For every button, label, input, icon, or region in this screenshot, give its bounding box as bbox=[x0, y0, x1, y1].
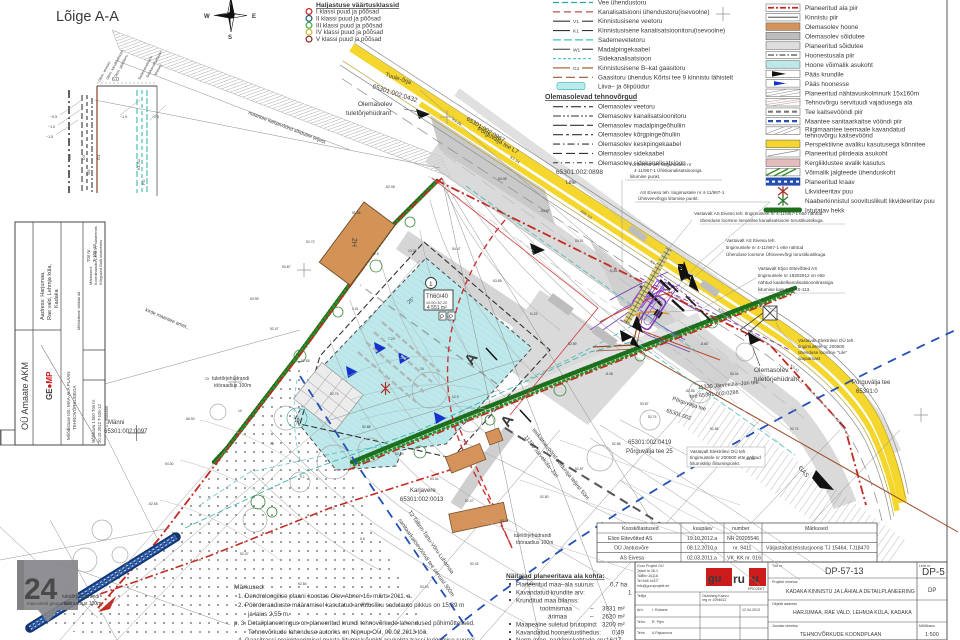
svg-text:08.12.2010.a: 08.12.2010.a bbox=[687, 546, 717, 552]
svg-text:Vastavalt Elektrilevi OÜ teh.: Vastavalt Elektrilevi OÜ teh. bbox=[690, 448, 747, 454]
svg-text:53.44: 53.44 bbox=[430, 477, 439, 481]
svg-text:Liiva– ja õlipüüdur: Liiva– ja õlipüüdur bbox=[598, 84, 650, 91]
svg-text:tuletõrjehüdrant: tuletõrjehüdrant bbox=[346, 110, 391, 117]
svg-text:alajaamast: alajaamast bbox=[798, 356, 821, 361]
svg-text:N-23: N-23 bbox=[530, 312, 537, 316]
svg-text:Kinnistusisene kanalisatsiooni: Kinnistusisene kanalisatsioonitoru(isevo… bbox=[598, 28, 725, 35]
svg-text:reg nr 1094612: reg nr 1094612 bbox=[702, 598, 726, 602]
svg-text:nähtud kaabelkanalisatsioonitr: nähtud kaabelkanalisatsioonitrassiga bbox=[758, 280, 834, 285]
svg-text:Projekti nimetus: Projekti nimetus bbox=[772, 580, 798, 584]
svg-text:-8.08: -8.08 bbox=[605, 372, 613, 376]
svg-text:V klassi puud ja põõsad: V klassi puud ja põõsad bbox=[316, 36, 382, 43]
svg-text:-52.85: -52.85 bbox=[685, 389, 695, 393]
svg-text:52.43: 52.43 bbox=[470, 562, 479, 566]
svg-text:~1.9: ~1.9 bbox=[120, 115, 127, 119]
svg-text:number: number bbox=[732, 526, 750, 532]
svg-text:P: P bbox=[440, 315, 444, 321]
svg-text:OÜ Amaate AKM: OÜ Amaate AKM bbox=[20, 362, 30, 430]
svg-text:Th60/40: Th60/40 bbox=[426, 294, 449, 300]
svg-text:liitumise punkt.: liitumise punkt. bbox=[630, 174, 660, 179]
svg-text:65301:002:0013: 65301:002:0013 bbox=[400, 497, 444, 503]
svg-text:Tee kaitsevööndi piir: Tee kaitsevööndi piir bbox=[805, 109, 864, 116]
svg-text:Tehnovõrkude lahenduse autorik: Tehnovõrkude lahenduse autoriks on Nipnu… bbox=[248, 629, 428, 636]
svg-text:52.89: 52.89 bbox=[568, 342, 577, 346]
svg-text:-8.85: -8.85 bbox=[700, 342, 708, 346]
svg-text:E: E bbox=[252, 14, 256, 20]
svg-text:52.47: 52.47 bbox=[465, 499, 474, 503]
svg-text:-53.08: -53.08 bbox=[745, 457, 755, 461]
svg-text:Kanalisatsiooni ühendustoru(is: Kanalisatsiooni ühendustoru(isevoolne) bbox=[598, 9, 710, 16]
svg-text:Olemasolevad tehnovõrgud: Olemasolevad tehnovõrgud bbox=[545, 94, 637, 101]
svg-text:–: – bbox=[590, 614, 594, 621]
svg-text:NR 20205546: NR 20205546 bbox=[727, 536, 759, 542]
svg-text:Kõrgused Balti süsteemis: Kõrgused Balti süsteemis bbox=[98, 240, 103, 285]
svg-text:Olemasolev kanalisatsioonitoru: Olemasolev kanalisatsioonitoru bbox=[598, 113, 687, 120]
svg-text:~1.5: ~1.5 bbox=[46, 135, 53, 139]
svg-text:KADAKA KINNISTU JA LÄHIALA DET: KADAKA KINNISTU JA LÄHIALA DETAILPLANEER… bbox=[786, 588, 915, 595]
svg-text:1: 1 bbox=[628, 590, 632, 597]
svg-text:Sademevetetoru: Sademevetetoru bbox=[598, 37, 645, 44]
svg-text:3931 m²: 3931 m² bbox=[602, 606, 625, 613]
svg-text:4.51: 4.51 bbox=[352, 307, 359, 311]
svg-text:ja laius 2,55 m.: ja laius 2,55 m. bbox=[247, 611, 290, 618]
svg-text:Põrguvälja tee: Põrguvälja tee bbox=[852, 380, 891, 386]
svg-text:-52.85: -52.85 bbox=[300, 359, 310, 363]
svg-text:ärimaa: ärimaa bbox=[548, 614, 567, 621]
svg-text:Töö Nr.: Töö Nr. bbox=[86, 248, 91, 262]
svg-text:A Pajusnova: A Pajusnova bbox=[652, 631, 672, 635]
svg-text:Näitajad planeeritava ala k: Näitajad planeeritava ala kohta: bbox=[506, 573, 605, 580]
svg-text:52.74: 52.74 bbox=[648, 415, 657, 419]
svg-text:20.10.2012 T-105-12: 20.10.2012 T-105-12 bbox=[97, 404, 102, 443]
svg-text:Mõõdulised: täõädu ää: Mõõdulised: täõädu ää bbox=[77, 291, 81, 330]
svg-text:DP-57-13: DP-57-13 bbox=[825, 566, 864, 576]
svg-text:Männi: Männi bbox=[108, 420, 124, 426]
svg-text:-53.85: -53.85 bbox=[492, 279, 502, 283]
svg-text:–: – bbox=[590, 606, 594, 613]
svg-text:K1-S1: K1-S1 bbox=[136, 158, 141, 170]
svg-text:W: W bbox=[204, 14, 210, 20]
svg-text:3200 m²: 3200 m² bbox=[602, 622, 625, 629]
svg-text:Olemasolev kõrgpingeõhuliin: Olemasolev kõrgpingeõhuliin bbox=[598, 132, 681, 139]
svg-text:~1.0: ~1.0 bbox=[48, 125, 55, 129]
svg-text:3.0: 3.0 bbox=[330, 507, 335, 511]
svg-text:0,49: 0,49 bbox=[612, 630, 625, 637]
svg-text:5.6: 5.6 bbox=[360, 537, 365, 541]
svg-text:Guru Projekt OÜ: Guru Projekt OÜ bbox=[637, 564, 664, 568]
svg-text:12.5: 12.5 bbox=[372, 252, 379, 256]
svg-text:4-11/967-1 Ühiskanalisatsioon: 4-11/967-1 Ühiskanalisatsiooniga bbox=[634, 167, 702, 173]
svg-text:65301:0: 65301:0 bbox=[856, 389, 878, 395]
svg-text:tuletõrjehüdrandi: tuletõrjehüdrandi bbox=[514, 533, 551, 539]
svg-text:Krunditud maa bilanss:: Krunditud maa bilanss: bbox=[516, 598, 579, 605]
svg-text:Arh.: Arh. bbox=[637, 608, 644, 612]
svg-text:52.87: 52.87 bbox=[575, 467, 584, 471]
svg-text:53.99: 53.99 bbox=[250, 297, 259, 301]
svg-text:Kinnistusisene veetoru: Kinnistusisene veetoru bbox=[598, 18, 663, 25]
svg-text:Kavandatud hoonestustihedus:: Kavandatud hoonestustihedus: bbox=[516, 630, 601, 637]
svg-text:02.03.2011.a: 02.03.2011.a bbox=[687, 555, 717, 561]
svg-text:R. Pijm: R. Pijm bbox=[652, 620, 664, 624]
svg-text:~2.0: ~2.0 bbox=[152, 115, 159, 119]
svg-text:52.89: 52.89 bbox=[395, 452, 404, 456]
svg-text:Naaberkinnistul soovituslikult: Naaberkinnistul soovituslikult likvideer… bbox=[805, 198, 935, 205]
svg-text:Tel 646 4410: Tel 646 4410 bbox=[637, 579, 658, 583]
svg-text:Elion Ettevõtted AS: Elion Ettevõtted AS bbox=[608, 536, 653, 542]
svg-text:Põrguvälja tee 25: Põrguvälja tee 25 bbox=[626, 449, 673, 455]
svg-text:nr. 9411: nr. 9411 bbox=[733, 546, 751, 552]
svg-text:54.08: 54.08 bbox=[498, 177, 507, 181]
svg-text:~0.5: ~0.5 bbox=[50, 115, 57, 119]
svg-text:10: 10 bbox=[238, 409, 242, 413]
svg-text:12.9: 12.9 bbox=[452, 395, 459, 399]
svg-text:Vastavalt Eljon Ettevõtted AS: Vastavalt Eljon Ettevõtted AS bbox=[758, 266, 817, 271]
svg-text:Planeeritud kraav: Planeeritud kraav bbox=[805, 179, 856, 186]
svg-text:Rae vald, Lehmja küla,: Rae vald, Lehmja küla, bbox=[47, 264, 53, 320]
svg-text:65301:002:0898: 65301:002:0898 bbox=[556, 169, 603, 176]
svg-text:Vastavalt AS Eivesa teh.: Vastavalt AS Eivesa teh. bbox=[726, 238, 776, 243]
svg-text:1. Dendroloogilise plaani ko: 1. Dendroloogilise plaani koostas Olev A… bbox=[238, 593, 413, 600]
svg-text:OÜ Jaotusvõre: OÜ Jaotusvõre bbox=[614, 545, 649, 552]
svg-text:AS Eiveso teh. tingimustele nr: AS Eiveso teh. tingimustele nr 4-11/967-… bbox=[640, 190, 725, 195]
svg-text:Kavandatud krundite arv:: Kavandatud krundite arv: bbox=[516, 590, 585, 597]
svg-text:PROJEKT: PROJEKT bbox=[748, 587, 765, 591]
svg-text:1: 1 bbox=[429, 281, 433, 288]
svg-text:52.47: 52.47 bbox=[240, 552, 249, 556]
svg-text:Mõõtkava: Mõõtkava bbox=[919, 624, 935, 628]
svg-text:liitumiskilp /liitumispunkt.: liitumiskilp /liitumispunkt. bbox=[690, 461, 740, 466]
svg-text:53.87: 53.87 bbox=[282, 265, 291, 269]
svg-text:Tellija: Tellija bbox=[637, 594, 646, 598]
svg-text:65301:002:0097: 65301:002:0097 bbox=[104, 429, 148, 435]
svg-text:Kadaka: Kadaka bbox=[54, 288, 60, 308]
svg-text:52.88: 52.88 bbox=[612, 442, 621, 446]
svg-text:p. 3. Detailplaneeringus on: p. 3. Detailplaneeringus on planeeritud … bbox=[234, 620, 475, 627]
svg-text:Tehn: Tehn bbox=[637, 631, 645, 635]
svg-text:52.74: 52.74 bbox=[330, 392, 339, 396]
svg-text:tehnovõrgu kaitsevöönd: tehnovõrgu kaitsevöönd bbox=[805, 132, 873, 139]
svg-text:tuletõrjehüdrandi: tuletõrjehüdrandi bbox=[212, 376, 249, 382]
svg-text:info@guruprojekt.ee: info@guruprojekt.ee bbox=[637, 584, 669, 588]
svg-text:Planeeritud sõidutee: Planeeritud sõidutee bbox=[805, 43, 864, 50]
svg-text:I. Robane: I. Robane bbox=[652, 608, 668, 612]
svg-text:-56.50: -56.50 bbox=[185, 417, 195, 421]
svg-text:Vastavalt Elektrilevi OÜ teh.: Vastavalt Elektrilevi OÜ teh. bbox=[798, 337, 855, 343]
svg-text:52.80: 52.80 bbox=[540, 495, 549, 499]
svg-text:V1: V1 bbox=[573, 19, 579, 25]
svg-text:-52.65: -52.65 bbox=[148, 502, 158, 506]
svg-text:tuletõrjehüdrant: tuletõrjehüdrant bbox=[754, 376, 799, 383]
svg-text:13.37: 13.37 bbox=[408, 249, 417, 253]
svg-text:Olemasolev keskpingekaabel: Olemasolev keskpingekaabel bbox=[598, 141, 681, 148]
svg-text:S: S bbox=[228, 35, 232, 41]
svg-text:GE●MP: GE●MP bbox=[45, 371, 54, 400]
svg-text:-8.44: -8.44 bbox=[525, 582, 533, 586]
svg-text:Vee ühendustoru: Vee ühendustoru bbox=[598, 0, 647, 7]
svg-text:-53.87: -53.87 bbox=[540, 209, 550, 213]
svg-text:Töö nr: Töö nr bbox=[772, 564, 783, 568]
svg-text:9.1: 9.1 bbox=[300, 475, 305, 479]
svg-text:ru: ru bbox=[733, 572, 745, 586]
svg-text:Joonise nimetus: Joonise nimetus bbox=[772, 624, 798, 628]
svg-text:VK_KK nr. 016: VK_KK nr. 016 bbox=[727, 555, 761, 561]
svg-text:W1: W1 bbox=[86, 168, 91, 175]
svg-text:51.08: 51.08 bbox=[352, 211, 361, 215]
svg-text:12.04.2013: 12.04.2013 bbox=[742, 608, 760, 612]
svg-text:tootmismaa: tootmismaa bbox=[540, 606, 573, 613]
svg-text:Hoone võimalik asukoht: Hoone võimalik asukoht bbox=[805, 62, 873, 69]
svg-text:tuletõrjehüdrandi: tuletõrjehüdrandi bbox=[62, 594, 99, 600]
svg-text:Tehn.: Tehn. bbox=[637, 620, 646, 624]
svg-text:52.88: 52.88 bbox=[362, 425, 371, 429]
svg-text:ühenduse loomine isevoolse kan: ühenduse loomine isevoolse kanalisatsioo… bbox=[700, 218, 824, 223]
svg-text:Tehnovõrgu servituudi vajaduse: Tehnovõrgu servituudi vajadusega ala bbox=[805, 100, 913, 107]
svg-text:Mõõdistuse töö: MAA-ALA PLAAN: Mõõdistuse töö: MAA-ALA PLAAN bbox=[66, 371, 71, 440]
svg-text:HARJUMAA, RAE VALD, LEHMJA KÜL: HARJUMAA, RAE VALD, LEHMJA KÜLA, KADAKA bbox=[793, 609, 912, 616]
svg-text:G1: G1 bbox=[573, 66, 580, 72]
svg-text:Lõige A-A: Lõige A-A bbox=[56, 9, 119, 25]
svg-text:Planeeritud piirdeaia asukoht: Planeeritud piirdeaia asukoht bbox=[805, 151, 888, 158]
svg-text:Tatari tn 26-1: Tatari tn 26-1 bbox=[637, 569, 658, 573]
svg-text:53.44: 53.44 bbox=[500, 519, 509, 523]
svg-text:gu: gu bbox=[708, 573, 721, 585]
svg-text:LM: LM bbox=[67, 154, 72, 160]
svg-text:tingimustele nr 4-11/967-1 e: tingimustele nr 4-11/967-1 ette nähtud bbox=[726, 245, 804, 250]
svg-text:54.30: 54.30 bbox=[165, 462, 174, 466]
svg-text:1:500: 1:500 bbox=[925, 632, 939, 638]
svg-text:TEHNOVÕRKUDEGA: TEHNOVÕRKUDEGA bbox=[71, 385, 77, 430]
svg-text:Pääs krundile: Pääs krundile bbox=[805, 71, 844, 78]
svg-text:Aadress: Harjumaa,: Aadress: Harjumaa, bbox=[40, 271, 46, 320]
svg-text:2H: 2H bbox=[350, 238, 357, 247]
svg-text:Kergliiklustee avalik kasutus: Kergliiklustee avalik kasutus bbox=[805, 160, 885, 167]
svg-text:52.72: 52.72 bbox=[306, 240, 315, 244]
svg-text:Olemasolev veetoru: Olemasolev veetoru bbox=[598, 104, 655, 111]
svg-text:-52.08: -52.08 bbox=[385, 185, 395, 189]
svg-text:52.74: 52.74 bbox=[790, 427, 799, 431]
svg-text:Olemasolev hoone: Olemasolev hoone bbox=[805, 24, 859, 31]
svg-text:19: 19 bbox=[294, 418, 300, 424]
svg-text:liitumine kasutust AS-113.: liitumine kasutust AS-113. bbox=[758, 287, 811, 292]
svg-text:DP-5: DP-5 bbox=[922, 567, 945, 578]
svg-text:Ühisveevõrgjo liitumise punkt.: Ühisveevõrgjo liitumise punkt. bbox=[638, 195, 699, 201]
svg-text:54.47: 54.47 bbox=[452, 247, 461, 251]
svg-text:AS Eiveso teh. tingimustele nr: AS Eiveso teh. tingimustele nr bbox=[630, 162, 692, 167]
svg-text:Karjavere: Karjavere bbox=[410, 488, 436, 494]
svg-text:Gaasitoru ühendus Kõrtsi tee 9: Gaasitoru ühendus Kõrtsi tee 9 kinnistu … bbox=[598, 74, 733, 81]
svg-text:Olemasolev sõidutee: Olemasolev sõidutee bbox=[805, 34, 865, 41]
svg-text:53.87: 53.87 bbox=[640, 402, 649, 406]
svg-text:Objekti aadress: Objekti aadress bbox=[772, 602, 797, 606]
svg-text:53.03: 53.03 bbox=[420, 585, 429, 589]
svg-text:tööraadius 100m: tööraadius 100m bbox=[516, 540, 553, 546]
svg-text:Pääs hoonesse: Pääs hoonesse bbox=[805, 81, 850, 88]
svg-text:Madalpingekaabel: Madalpingekaabel bbox=[598, 46, 650, 53]
svg-text:Maantee sanitaarkaitse vööndi: Maantee sanitaarkaitse vööndi piir bbox=[805, 119, 903, 126]
svg-text:K1: K1 bbox=[573, 29, 579, 35]
svg-text:ühenduse loomine "Lile": ühenduse loomine "Lile" bbox=[798, 350, 848, 355]
svg-text:tööraadius 100m: tööraadius 100m bbox=[64, 601, 101, 607]
svg-text:kuupäev: kuupäev bbox=[693, 526, 713, 532]
svg-text:Maapealne suletud brutopind:: Maapealne suletud brutopind: bbox=[516, 622, 598, 629]
svg-text:LO: LO bbox=[81, 155, 86, 160]
svg-text:7.23: 7.23 bbox=[388, 337, 395, 341]
svg-text:2620 m²: 2620 m² bbox=[602, 614, 625, 621]
svg-text:0,7 ha: 0,7 ha bbox=[610, 582, 628, 589]
svg-text:16: 16 bbox=[270, 442, 274, 446]
svg-text:FG: FG bbox=[141, 179, 146, 185]
svg-text:W1: W1 bbox=[573, 47, 581, 53]
svg-text:Planeeritud ala piir: Planeeritud ala piir bbox=[805, 5, 859, 12]
svg-text:Kooskõlastused: Kooskõlastused bbox=[622, 526, 659, 532]
svg-text:52.88: 52.88 bbox=[710, 427, 719, 431]
svg-text:Mõõtkava 1:500 Töö nr.: Mõõtkava 1:500 Töö nr. bbox=[91, 399, 96, 443]
svg-text:4 551 m²: 4 551 m² bbox=[427, 305, 447, 311]
svg-text:Planeeritud nähtavuskolmnurk 1: Planeeritud nähtavuskolmnurk 15x160m bbox=[805, 90, 919, 97]
svg-text:2. Pöörderaadiuste määramise: 2. Pöörderaadiuste määramisel kasutatud … bbox=[238, 602, 464, 609]
svg-text:53.44: 53.44 bbox=[730, 372, 739, 376]
svg-text:Hoonestusala piir: Hoonestusala piir bbox=[805, 52, 855, 59]
svg-text:AS Eivesa: AS Eivesa bbox=[620, 555, 644, 561]
svg-text:52.84: 52.84 bbox=[298, 582, 307, 586]
svg-text:52.47: 52.47 bbox=[270, 327, 279, 331]
svg-text:19.10.2012.a: 19.10.2012.a bbox=[687, 536, 717, 542]
svg-text:Märkused:: Märkused: bbox=[234, 584, 265, 591]
svg-text:Märkused: Märkused bbox=[805, 526, 828, 532]
svg-text:Likvideeritav puu: Likvideeritav puu bbox=[805, 189, 853, 196]
svg-text:DP: DP bbox=[928, 588, 936, 594]
svg-text:Perspektiivne avaliku kasutuse: Perspektiivne avaliku kasutusega kõnnite… bbox=[805, 141, 926, 148]
svg-text:Ühenduse loomine Ühisveevõrgi: Ühenduse loomine Ühisveevõrgi torustikus… bbox=[726, 251, 826, 257]
svg-text:Väljastatud teostusjoonis TJ 1: Väljastatud teostusjoonis TJ 15464, TJ18… bbox=[766, 546, 869, 552]
svg-text:Võimalik jalgteede ühenduskoht: Võimalik jalgteede ühenduskoht bbox=[805, 170, 895, 177]
svg-text:Kinnistusisene B–kat gaasitoru: Kinnistusisene B–kat gaasitoru bbox=[598, 65, 686, 72]
svg-text:23: 23 bbox=[205, 377, 209, 381]
svg-text:-53.44: -53.44 bbox=[360, 602, 370, 606]
svg-text:Olemasolev sidekaabel: Olemasolev sidekaabel bbox=[598, 150, 664, 157]
svg-text:Kinnistu piir: Kinnistu piir bbox=[805, 15, 839, 22]
svg-text:Olemasolev madalpingeõhuliin: Olemasolev madalpingeõhuliin bbox=[598, 122, 685, 129]
svg-text:tingimustele nr 19302912 on: tingimustele nr 19302912 on ette bbox=[758, 273, 825, 278]
svg-text:10: 10 bbox=[420, 367, 424, 371]
svg-text:G1: G1 bbox=[96, 154, 101, 160]
svg-text:TEHNOVÕRKUDE KOONDPLAAN: TEHNOVÕRKUDE KOONDPLAAN bbox=[800, 631, 882, 638]
svg-text:65301:002:0419: 65301:002:0419 bbox=[628, 440, 672, 446]
svg-text:Olemasolev: Olemasolev bbox=[358, 101, 393, 108]
svg-text:tööraadius 100m: tööraadius 100m bbox=[214, 383, 251, 389]
svg-text:Sidekanalisatsioon: Sidekanalisatsioon bbox=[598, 56, 652, 63]
